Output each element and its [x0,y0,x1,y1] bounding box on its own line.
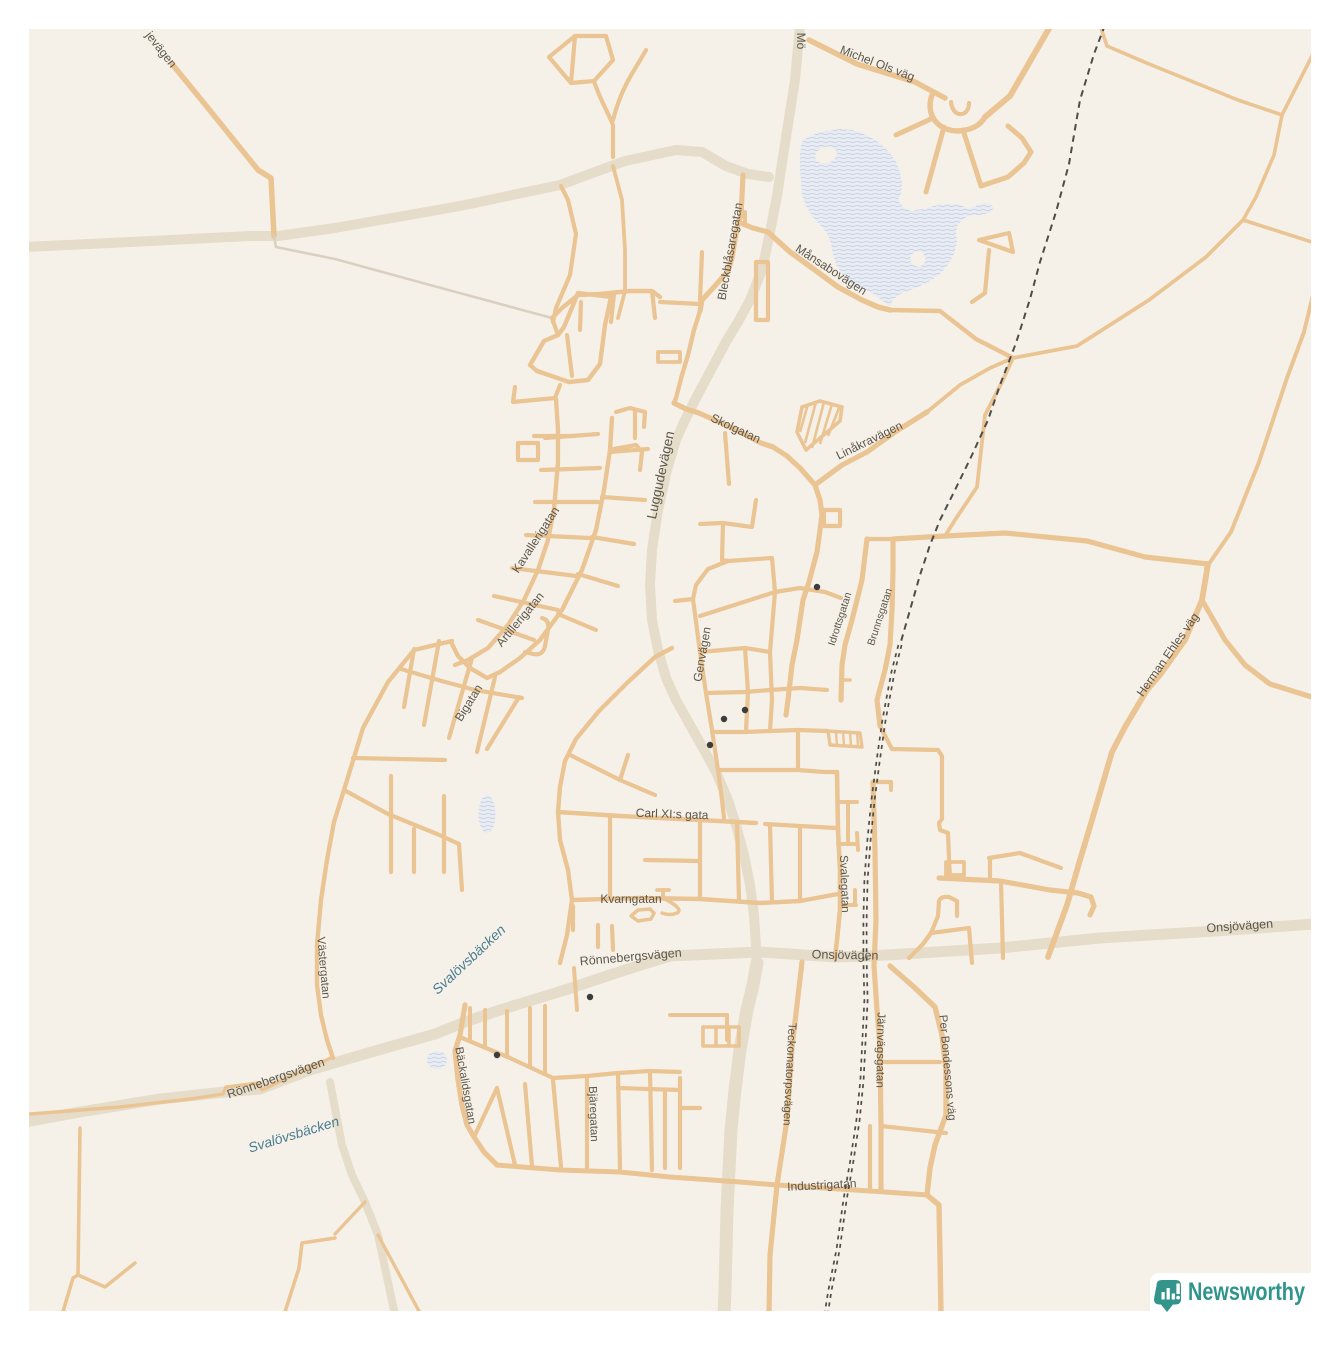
svg-text:Kvarngatan: Kvarngatan [600,892,661,906]
svg-text:Svalegatan: Svalegatan [837,855,851,913]
svg-text:Carl XI:s gata: Carl XI:s gata [636,806,709,823]
svg-text:Järnvägsgatan: Järnvägsgatan [873,1012,886,1088]
svg-text:Onsjövägen: Onsjövägen [812,947,879,962]
svg-text:Bjäregatan: Bjäregatan [586,1086,600,1142]
svg-text:Mö: Mö [794,33,808,50]
svg-text:Newsworthy: Newsworthy [1188,1278,1305,1306]
